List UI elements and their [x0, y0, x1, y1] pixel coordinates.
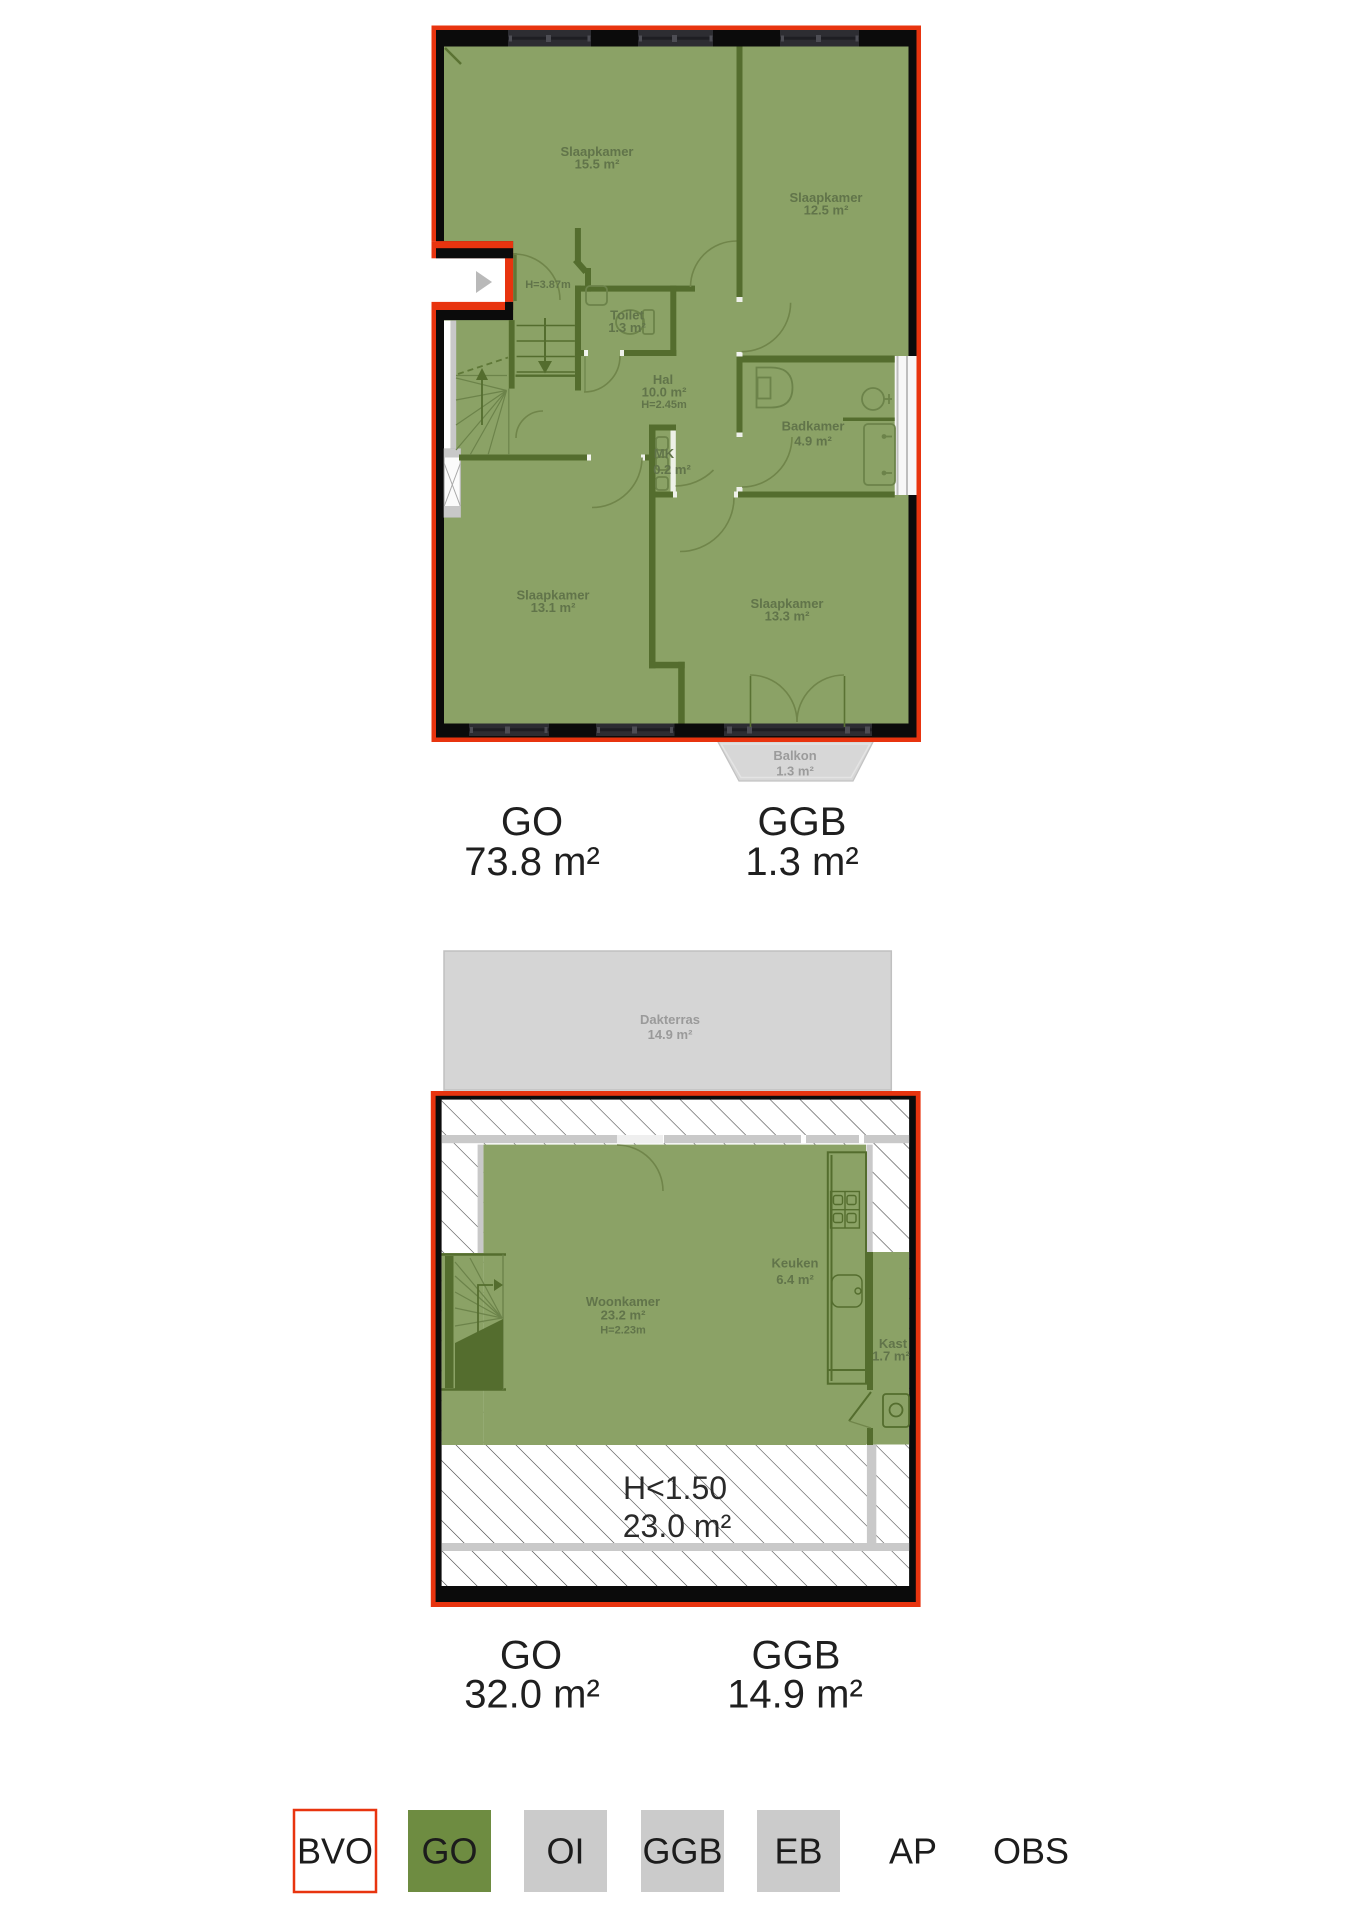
svg-text:Dakterras: Dakterras [640, 1012, 700, 1027]
svg-text:H=2.23m: H=2.23m [600, 1325, 646, 1337]
svg-text:15.5 m²: 15.5 m² [575, 157, 620, 172]
svg-text:14.9 m²: 14.9 m² [727, 1673, 863, 1717]
svg-text:10.0 m²: 10.0 m² [642, 385, 687, 400]
svg-text:GO: GO [421, 1831, 477, 1872]
svg-text:32.0 m²: 32.0 m² [464, 1673, 600, 1717]
svg-text:13.3 m²: 13.3 m² [765, 609, 810, 624]
svg-text:AP: AP [889, 1831, 937, 1872]
svg-text:GO: GO [501, 800, 563, 844]
svg-text:OBS: OBS [993, 1831, 1069, 1872]
svg-text:Keuken: Keuken [772, 1256, 819, 1271]
svg-text:6.4 m²: 6.4 m² [776, 1272, 814, 1287]
svg-text:MK: MK [654, 446, 675, 461]
svg-text:BVO: BVO [297, 1831, 373, 1872]
svg-text:12.5 m²: 12.5 m² [804, 203, 849, 218]
svg-text:H=2.45m: H=2.45m [641, 399, 687, 411]
svg-text:0.2 m²: 0.2 m² [653, 462, 691, 477]
svg-text:23.0 m²: 23.0 m² [623, 1508, 732, 1544]
svg-text:H=3.87m: H=3.87m [525, 279, 571, 291]
svg-text:Badkamer: Badkamer [782, 419, 845, 434]
svg-text:GGB: GGB [642, 1831, 722, 1872]
svg-text:1.7 m²: 1.7 m² [872, 1349, 910, 1364]
svg-text:4.9 m²: 4.9 m² [794, 434, 832, 449]
svg-text:GGB: GGB [752, 1634, 841, 1678]
svg-text:GO: GO [500, 1634, 562, 1678]
svg-text:Balkon: Balkon [773, 748, 816, 763]
svg-text:EB: EB [774, 1831, 822, 1872]
svg-text:1.3 m²: 1.3 m² [608, 320, 646, 335]
svg-text:H<1.50: H<1.50 [623, 1470, 727, 1506]
svg-text:13.1 m²: 13.1 m² [531, 600, 576, 615]
svg-text:73.8 m²: 73.8 m² [464, 840, 600, 884]
svg-text:OI: OI [546, 1831, 584, 1872]
svg-text:14.9 m²: 14.9 m² [648, 1027, 693, 1042]
svg-text:23.2 m²: 23.2 m² [601, 1308, 646, 1323]
svg-text:GGB: GGB [758, 800, 847, 844]
svg-text:1.3 m²: 1.3 m² [776, 764, 814, 779]
svg-text:1.3 m²: 1.3 m² [745, 840, 858, 884]
